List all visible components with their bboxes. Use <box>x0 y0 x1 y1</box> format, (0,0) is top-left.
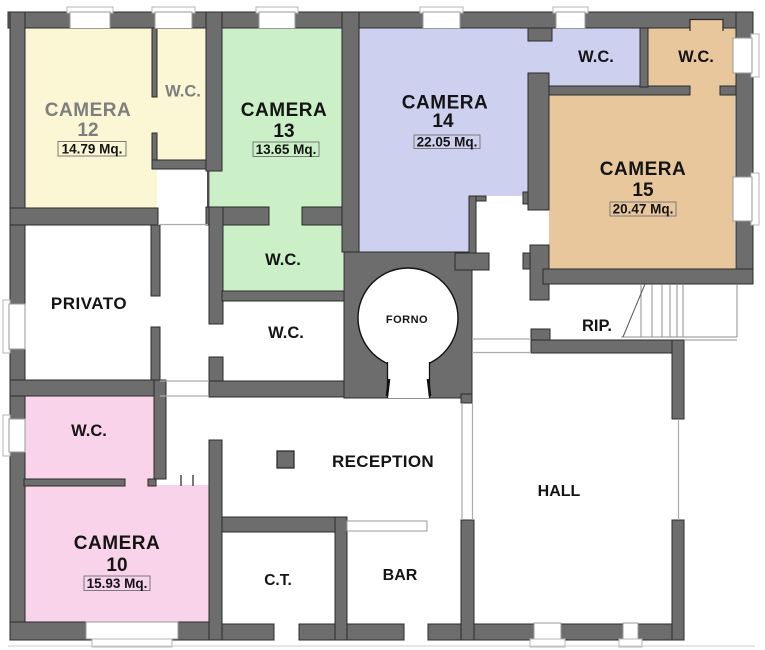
svg-text:15.93 Mq.: 15.93 Mq. <box>87 576 148 591</box>
svg-text:PRIVATO: PRIVATO <box>51 294 127 313</box>
svg-text:FORNO: FORNO <box>386 314 428 326</box>
svg-text:14: 14 <box>432 111 454 132</box>
svg-text:22.05 Mq.: 22.05 Mq. <box>417 135 478 150</box>
svg-text:W.C.: W.C. <box>268 324 304 342</box>
svg-text:CAMERA: CAMERA <box>74 533 160 554</box>
svg-text:W.C.: W.C. <box>165 83 201 101</box>
svg-text:CAMERA: CAMERA <box>600 159 686 180</box>
svg-text:10: 10 <box>106 555 127 576</box>
svg-text:C.T.: C.T. <box>264 572 292 589</box>
svg-text:W.C.: W.C. <box>678 48 714 66</box>
svg-text:12: 12 <box>77 120 98 141</box>
svg-text:W.C.: W.C. <box>265 251 301 269</box>
svg-text:BAR: BAR <box>383 567 418 584</box>
svg-text:20.47 Mq.: 20.47 Mq. <box>613 202 674 217</box>
svg-text:HALL: HALL <box>538 483 581 500</box>
svg-text:15: 15 <box>632 180 654 201</box>
svg-text:CAMERA: CAMERA <box>241 100 327 121</box>
svg-text:CAMERA: CAMERA <box>45 100 131 121</box>
svg-text:W.C.: W.C. <box>578 48 614 66</box>
svg-text:RECEPTION: RECEPTION <box>332 452 434 471</box>
svg-text:14.79 Mq.: 14.79 Mq. <box>62 142 123 157</box>
svg-text:RIP.: RIP. <box>582 317 612 335</box>
svg-text:13: 13 <box>273 121 294 142</box>
svg-text:13.65 Mq.: 13.65 Mq. <box>256 142 317 157</box>
svg-text:W.C.: W.C. <box>71 422 107 440</box>
